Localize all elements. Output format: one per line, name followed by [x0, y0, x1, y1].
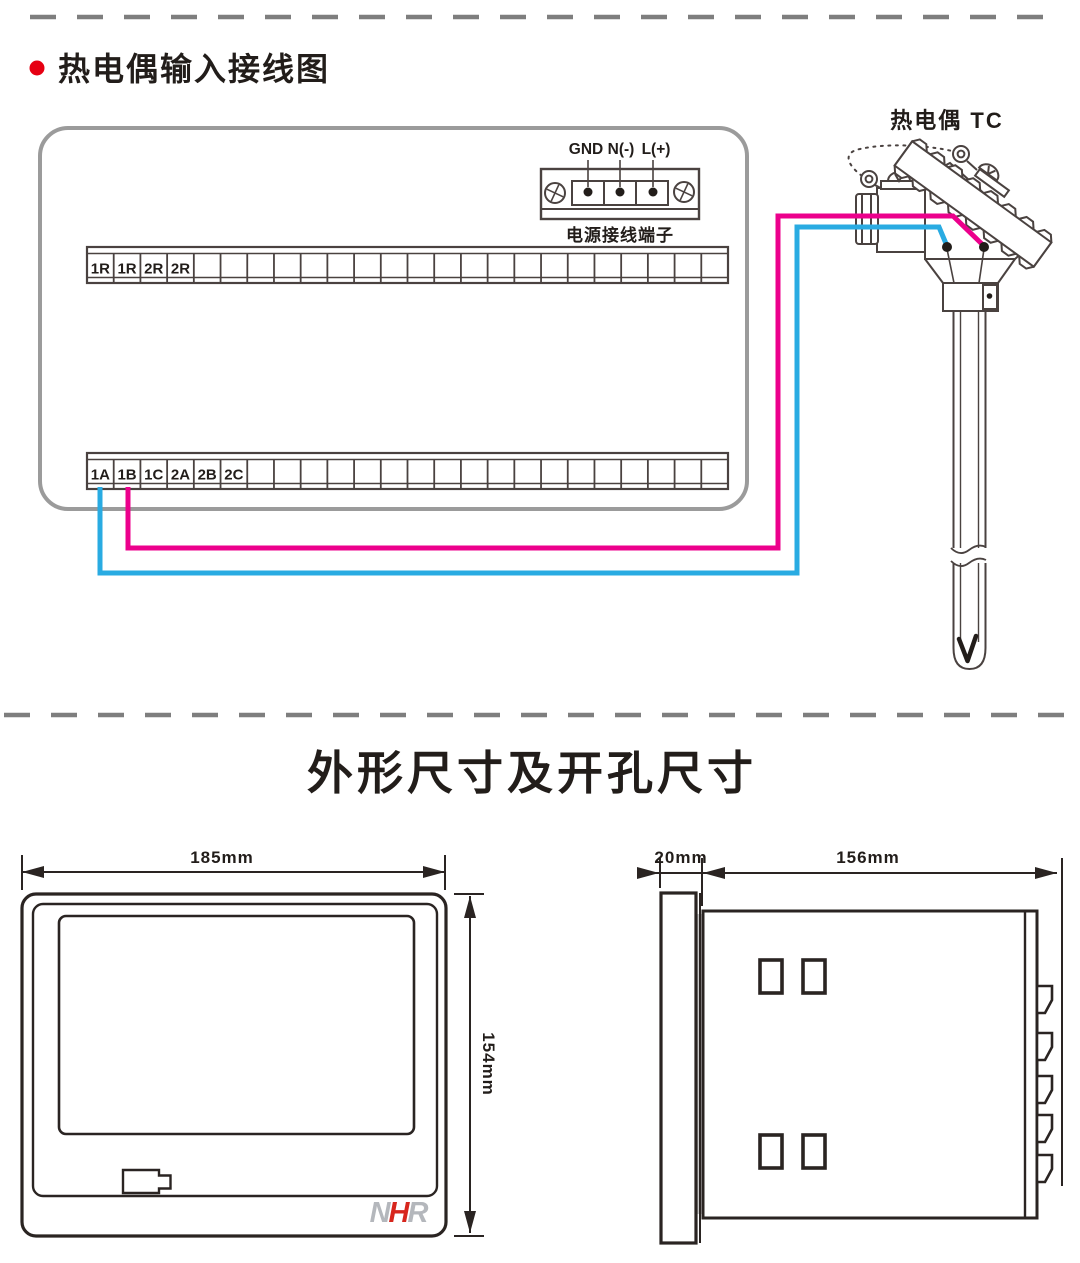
- terminal-cell-label: 2C: [224, 467, 243, 484]
- thermocouple-label: 热电偶 TC: [890, 108, 1003, 133]
- section2-title: 外形尺寸及开孔尺寸: [307, 747, 757, 799]
- bullet-icon: [30, 61, 45, 76]
- front-width-dimension: 185mm: [190, 848, 254, 867]
- terminal-cell-label: 2B: [198, 467, 217, 484]
- power-terminal-caption: 电源接线端子: [566, 225, 674, 245]
- power-terminal-block: GND N(-) L(+) 电源接线端子: [541, 141, 699, 245]
- manual-page: 热电偶输入接线图 GND N(-) L(+) 电源接线端子: [0, 0, 1080, 1263]
- mounting-clamp-slot: [760, 960, 782, 993]
- arrow-left-icon: [703, 867, 725, 879]
- arrow-down-icon: [464, 1211, 476, 1233]
- side-body-dimension: 156mm: [836, 848, 900, 867]
- mounting-clamp-slot: [803, 1135, 825, 1168]
- hex-nut: [856, 194, 878, 244]
- terminal-cell-label: 1B: [117, 467, 136, 484]
- terminal-cell-label: 2A: [171, 467, 190, 484]
- section1-title: 热电偶输入接线图: [58, 51, 330, 87]
- side-case-body: [703, 911, 1037, 1218]
- arrow-up-icon: [464, 896, 476, 918]
- side-front-bezel: [661, 893, 696, 1243]
- side-view-drawing: 20mm 156mm: [637, 848, 1062, 1243]
- thermocouple-drawing: 热电偶 TC: [849, 108, 1055, 669]
- probe-tip-mark: [959, 636, 976, 661]
- terminal-cell-label: 2R: [144, 261, 163, 278]
- front-bezel-outer: [22, 894, 446, 1236]
- mounting-clamp-slot: [760, 1135, 782, 1168]
- section1-heading: 热电偶输入接线图: [30, 51, 331, 87]
- nhr-logo: NHR: [370, 1197, 429, 1229]
- front-height-dimension: 154mm: [479, 1032, 498, 1096]
- wire-junction-dot: [979, 242, 989, 252]
- arrow-left-icon: [22, 866, 44, 878]
- power-label-line: L(+): [642, 141, 671, 158]
- mounting-clamp-slot: [803, 960, 825, 993]
- front-view-drawing: 185mm NHR 154mm: [22, 848, 498, 1236]
- terminal-cell-label: 1R: [91, 261, 110, 278]
- terminal-cell-label: 1R: [117, 261, 136, 278]
- terminal-cell-label: 1C: [144, 467, 163, 484]
- probe-stem: [951, 311, 986, 669]
- technical-diagram: 热电偶输入接线图 GND N(-) L(+) 电源接线端子: [0, 0, 1080, 1263]
- head-side-block: [877, 188, 925, 252]
- terminal-cell-label: 2R: [171, 261, 190, 278]
- power-label-neutral: N(-): [608, 141, 635, 158]
- terminal-strip-bottom: 1A1B1C2A2B2C: [87, 453, 728, 489]
- terminal-teeth: [1037, 986, 1052, 1182]
- arrow-right-icon: [637, 867, 659, 879]
- logo-letter-r: R: [407, 1197, 428, 1229]
- terminal-cell-label: 1A: [91, 467, 110, 484]
- arrow-right-icon: [1035, 867, 1057, 879]
- side-depth-dimension: 20mm: [654, 848, 707, 867]
- wire-junction-dot: [942, 242, 952, 252]
- power-label-gnd: GND: [569, 141, 603, 158]
- collar-screw-plate: [983, 285, 997, 309]
- arrow-right-icon: [423, 866, 445, 878]
- terminal-strip-top: 1R1R2R2R: [87, 247, 728, 283]
